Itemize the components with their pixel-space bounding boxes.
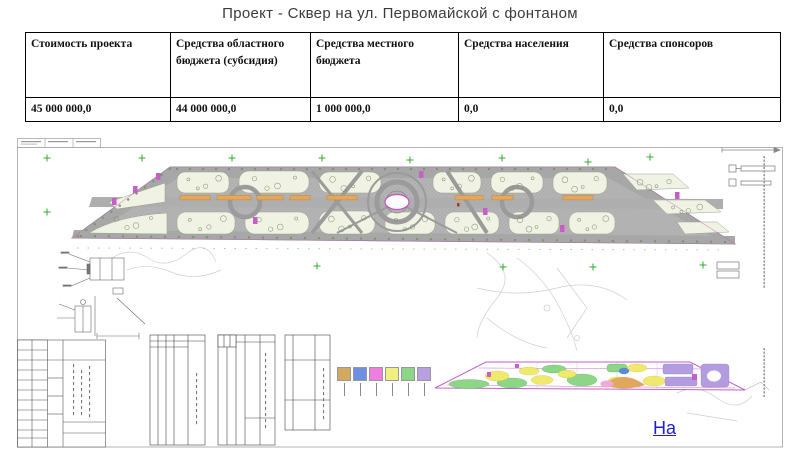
- spec-tables: [150, 335, 330, 445]
- legend-caption: [360, 383, 361, 396]
- legend-caption: [408, 383, 409, 396]
- legend-swatch-1: [338, 367, 350, 396]
- table-header-row: Стоимость проекта Средства областного бю…: [26, 33, 781, 98]
- col-header-local-budget: Средства местного бюджета: [311, 33, 459, 98]
- red-mark: [457, 203, 460, 207]
- mini-colored-plan: [435, 362, 769, 390]
- site-plan-svg: [17, 138, 783, 448]
- legend-caption: [392, 383, 393, 396]
- fountain-symbol: [385, 195, 409, 210]
- legend-caption: [376, 383, 377, 396]
- table-value-row: 45 000 000,0 44 000 000,0 1 000 000,0 0,…: [26, 98, 781, 122]
- col-header-population: Средства населения: [459, 33, 604, 98]
- legend-swatch-6: [418, 367, 430, 396]
- legend-caption: [424, 383, 425, 396]
- site-plan-drawing: [17, 138, 783, 448]
- col-header-project-cost: Стоимость проекта: [26, 33, 171, 98]
- title-block-stamp: [18, 340, 106, 447]
- legend-swatch-2: [354, 367, 366, 396]
- col-header-region-budget: Средства областного бюджета (субсидия): [171, 33, 311, 98]
- col-header-sponsors: Средства спонсоров: [604, 33, 781, 98]
- legend-swatch-3: [370, 367, 382, 396]
- vertical-annotation-text: [764, 156, 765, 397]
- legend-swatch-4: [386, 367, 398, 396]
- cell-population: 0,0: [459, 98, 604, 122]
- cell-local-budget: 1 000 000,0: [311, 98, 459, 122]
- hyperlink-na[interactable]: На: [653, 418, 676, 439]
- page-title: Проект - Сквер на ул. Первомайской с фон…: [0, 5, 800, 22]
- cell-region-budget: 44 000 000,0: [171, 98, 311, 122]
- pink-zone: [601, 381, 614, 388]
- cell-project-cost: 45 000 000,0: [26, 98, 171, 122]
- mini-fountain: [619, 368, 629, 374]
- cell-sponsors: 0,0: [604, 98, 781, 122]
- legend-caption: [344, 383, 345, 396]
- funding-table: Стоимость проекта Средства областного бю…: [25, 32, 781, 122]
- legend: [338, 367, 430, 396]
- legend-swatch-5: [402, 367, 414, 396]
